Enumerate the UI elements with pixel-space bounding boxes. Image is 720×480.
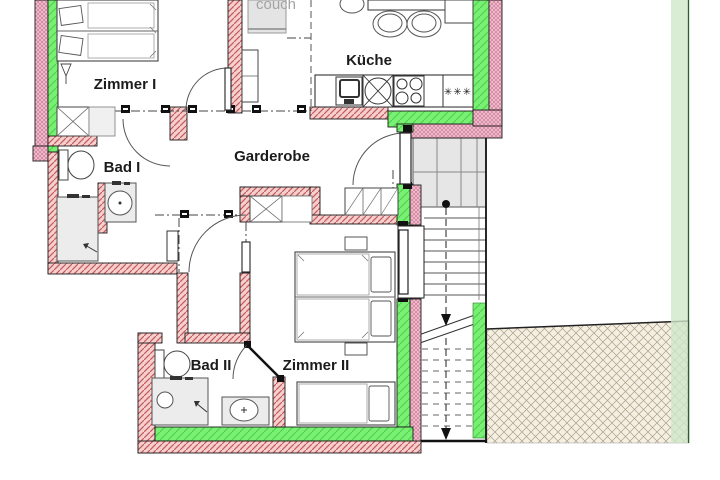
stair-direction-arrow-lower: [441, 428, 451, 440]
stair-outer-insulation: [473, 303, 486, 438]
ground-area: [487, 321, 689, 443]
room-label-bad2: Bad II: [191, 357, 232, 374]
room-label-bad1: Bad I: [104, 159, 141, 176]
room-label-garderobe: Garderobe: [234, 148, 310, 165]
dining-table: [368, 0, 446, 10]
walls: [33, 0, 502, 453]
room-label-zimmer2: Zimmer II: [283, 357, 350, 374]
zimmer1-door-leaf: [225, 68, 231, 110]
zimmer1-door-arc: [186, 68, 228, 110]
radiator: [167, 231, 178, 261]
entry-door-leaf: [400, 133, 411, 184]
floorplan-canvas: ✳✳✳: [0, 0, 720, 480]
toilet-bad2: [164, 351, 190, 377]
nightstand: [345, 237, 367, 250]
garderobe-door-arc: [189, 215, 246, 272]
shower-bad1: [57, 197, 98, 261]
stair-steps-lower: [422, 349, 478, 426]
zimmer2-furniture: [295, 237, 395, 425]
reading-lamp: [61, 64, 71, 76]
pillow: [59, 6, 83, 26]
pillow: [369, 386, 389, 421]
pillow: [371, 257, 391, 292]
toilet-tank-bad2: [155, 350, 164, 379]
zimmer2-window-leaf: [399, 230, 408, 294]
cabinet-garderobe: [282, 196, 312, 222]
pillow: [371, 301, 391, 336]
zimmer1-furniture: [57, 0, 158, 136]
stair-walkline-start-dot: [442, 200, 450, 208]
room-label-kueche: Küche: [346, 52, 392, 69]
bad2-door-arc: [233, 345, 247, 379]
counter-upper: [445, 0, 473, 23]
property-boundary-strip: [671, 0, 689, 443]
floorplan-drawing: ✳✳✳: [0, 0, 720, 480]
toilet-tank-bad1: [59, 150, 68, 180]
nightstand: [345, 343, 367, 355]
bad2-door-leaf: [247, 345, 281, 379]
shelf-zimmer1: [89, 107, 115, 136]
shoe-cabinet: [345, 188, 398, 215]
pillow: [59, 36, 83, 56]
freezer-stars: ✳✳✳: [444, 87, 472, 98]
couch-label: couch: [256, 0, 296, 13]
toilet-bad1: [68, 151, 94, 179]
entry-door-arc: [353, 133, 405, 185]
stair-steps-upper: [424, 218, 486, 295]
garderobe-door-leaf: [242, 242, 250, 272]
room-label-zimmer1: Zimmer I: [94, 76, 157, 93]
